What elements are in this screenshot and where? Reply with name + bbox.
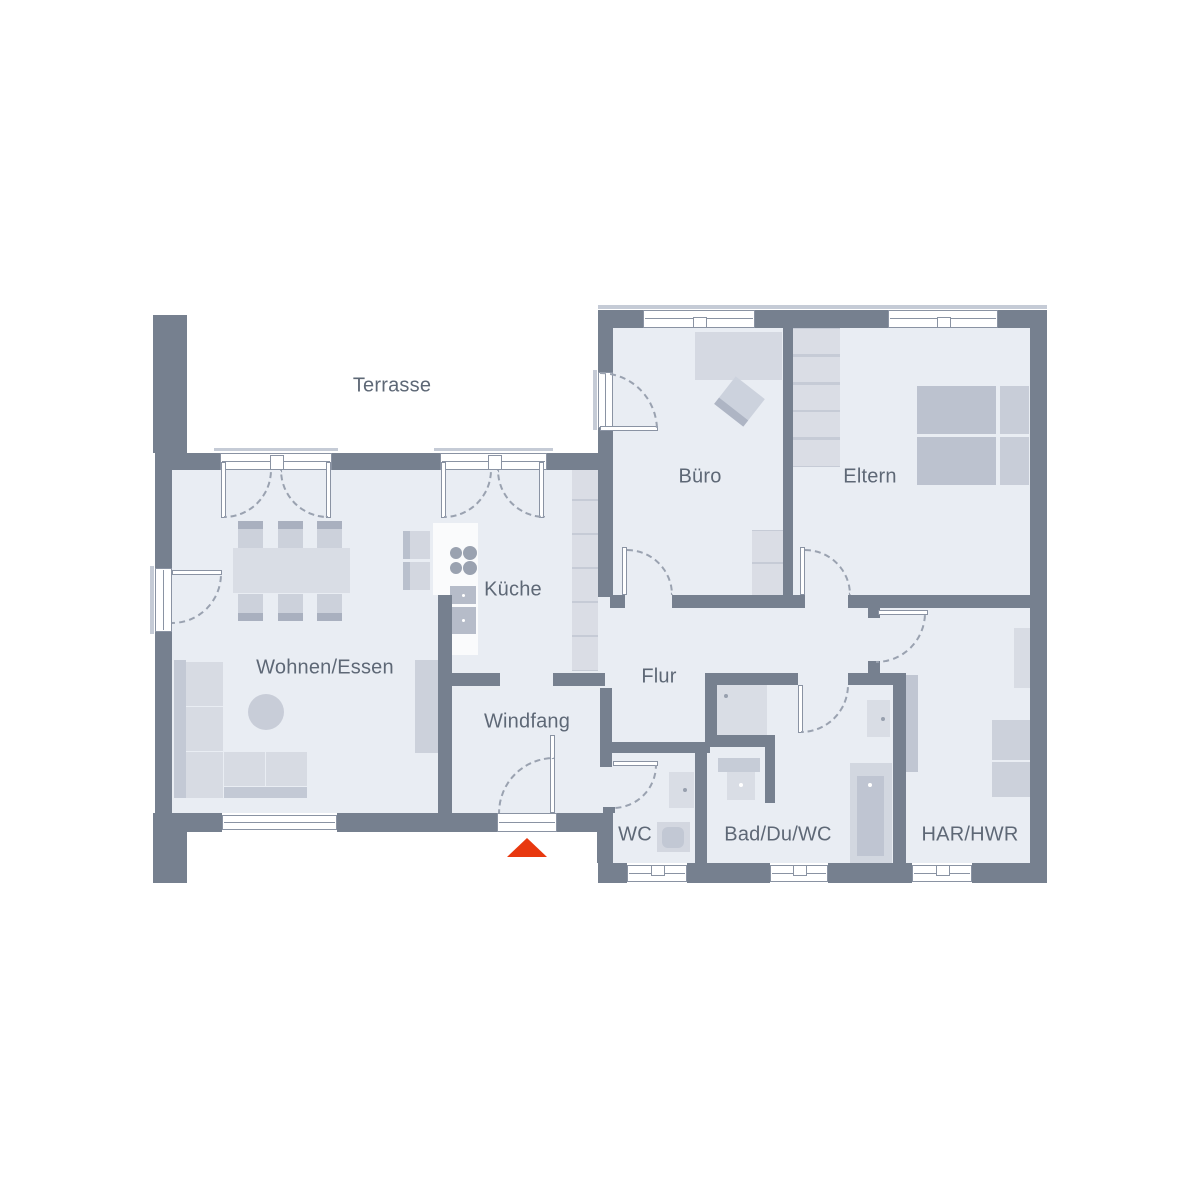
window-har: [912, 865, 972, 882]
window-eltern-top-mullion: [937, 317, 951, 328]
window-entrance-opening: [497, 813, 557, 832]
kitchen-cabinet-seg-6: [572, 637, 598, 670]
bad-washbasin-2: [867, 700, 890, 737]
wardrobe-seg-5: [793, 440, 840, 466]
sofa-seat-4: [266, 752, 307, 786]
wall-top-b: [332, 453, 440, 470]
wall-right-top-a: [598, 310, 643, 328]
sofa-back-bottom: [224, 787, 307, 798]
sofa-seat-1: [186, 662, 223, 706]
wall-wc-top: [603, 742, 710, 753]
window-left-door: [155, 568, 172, 632]
wall-bottom-a: [172, 813, 222, 832]
window-terrace-door-2-mullion: [488, 455, 502, 470]
har-shelf: [1014, 628, 1030, 688]
wall-step: [597, 813, 613, 863]
bar-chair-2: [403, 562, 430, 590]
wall-wc-east: [695, 742, 707, 863]
stove-burner-3: [450, 562, 462, 574]
chair-top-2-back: [278, 521, 303, 529]
wall-windfang-top-a: [450, 673, 500, 686]
sill-terrace-door-1: [214, 448, 338, 451]
kitchen-cabinet-seg-2: [572, 501, 598, 533]
window-har-mullion: [936, 865, 950, 876]
wc-washbasin-dot: [683, 788, 687, 792]
sofa-seat-2: [186, 707, 223, 751]
room-label-terrasse: Terrasse: [353, 375, 431, 398]
window-eltern-top: [888, 310, 998, 328]
shower: [717, 683, 767, 735]
wall-south-mid: [672, 595, 805, 608]
window-living-bottom: [222, 815, 337, 830]
wall-shower-partition: [765, 747, 775, 803]
bad-vanity-dot: [739, 783, 743, 787]
bed-mattress-1: [917, 386, 996, 434]
desk: [695, 332, 782, 380]
window-buero-top-mullion: [693, 317, 707, 328]
floor-plan-canvas: TerrasseBüroElternKücheWohnen/EssenFlurW…: [0, 0, 1200, 1200]
room-label-windfang: Windfang: [484, 711, 570, 734]
chair-bot-2-back: [278, 613, 303, 621]
wall-buero-eltern: [783, 328, 793, 597]
chair-bot-3-seat: [317, 594, 342, 613]
bathtub-dot: [868, 783, 872, 787]
window-terrace-door-1-mullion: [270, 455, 284, 470]
room-label-flur: Flur: [641, 666, 676, 689]
room-label-har-hwr: HAR/HWR: [922, 824, 1019, 847]
stove-burner-4: [463, 561, 477, 575]
shower-dot: [724, 694, 728, 698]
chair-top-3-back: [317, 521, 342, 529]
bad-washbasin-2-dot: [881, 717, 885, 721]
bed-head-1: [1000, 386, 1029, 434]
wall-right-bottom-d: [972, 863, 1047, 883]
room-label-wohnen-essen: Wohnen/Essen: [256, 657, 394, 680]
bar-chair-1: [403, 531, 430, 559]
window-wc: [627, 865, 687, 882]
wall-left-lower: [155, 632, 172, 813]
wc-washbasin: [669, 772, 694, 808]
window-bad: [770, 865, 828, 882]
room-label-wc: WC: [618, 824, 652, 847]
wall-south-stub: [610, 595, 625, 608]
chair-top-2-seat: [278, 529, 303, 548]
har-duct: [905, 675, 918, 772]
stove-burner-2: [463, 546, 477, 560]
bathtub-inner: [857, 776, 884, 856]
sofa-seat-3: [224, 752, 265, 786]
sill-top-strip: [598, 305, 1047, 309]
window-wc-mullion: [651, 865, 665, 876]
stove-burner-1: [450, 547, 462, 559]
wall-left-upper: [155, 453, 172, 568]
chair-bot-3-back: [317, 613, 342, 621]
sofa-back-left: [174, 660, 186, 798]
window-bad-mullion: [793, 865, 807, 876]
room-label-kueche: Küche: [484, 579, 542, 602]
har-appliance-2: [992, 762, 1030, 797]
wall-right: [1030, 310, 1047, 883]
chair-bot-1-seat: [238, 594, 263, 613]
bed-mattress-2: [917, 437, 996, 485]
kitchen-cabinet-seg-5: [572, 603, 598, 635]
coffee-table: [248, 694, 284, 730]
oven-1-dot: [462, 594, 465, 597]
room-label-bad-du-wc: Bad/Du/WC: [724, 824, 831, 847]
window-terrace-door-2: [440, 453, 547, 470]
har-appliance-1: [992, 720, 1030, 760]
sill-terrace-door-2: [434, 448, 553, 451]
kitchen-cabinet-seg-4: [572, 569, 598, 601]
wall-south-east: [848, 595, 1030, 608]
kitchen-cabinet-seg-1: [572, 467, 598, 499]
wardrobe-seg-1: [793, 329, 840, 354]
wall-shower: [705, 735, 775, 747]
wall-bad-har: [893, 673, 906, 863]
chair-bot-2-seat: [278, 594, 303, 613]
wall-bad-top-w: [705, 673, 798, 685]
wall-right-bottom-c: [828, 863, 912, 883]
wall-right-bottom-b: [687, 863, 770, 883]
chair-top-1-seat: [238, 529, 263, 548]
bad-vanity: [718, 758, 760, 772]
page: { "palette": { "wall": "#76808F", "floor…: [0, 0, 1200, 1200]
bed-head-2: [1000, 437, 1029, 485]
buero-cabinet-seg-1: [752, 531, 783, 562]
north-arrow-icon: [507, 838, 547, 857]
kitchen-cabinet-seg-3: [572, 535, 598, 567]
room-label-eltern: Eltern: [843, 466, 896, 489]
wall-top-a: [172, 453, 220, 470]
wall-wohnen-windfang: [438, 595, 452, 813]
window-left-door-glass-line: [163, 570, 164, 630]
wc-toilet-inner: [662, 827, 684, 848]
sill-buero-terrace: [593, 370, 597, 430]
window-buero-top: [643, 310, 755, 328]
chair-bot-1-back: [238, 613, 263, 621]
buero-cabinet-seg-2: [752, 564, 783, 596]
sofa-corner: [186, 752, 223, 798]
wall-windfang-top-b: [553, 673, 605, 686]
dining-table: [233, 548, 350, 593]
window-terrace-door-1: [220, 453, 332, 470]
wardrobe-seg-3: [793, 385, 840, 410]
oven-2-dot: [462, 619, 465, 622]
wardrobe-seg-4: [793, 412, 840, 437]
window-entrance-opening-glass-line: [499, 822, 555, 823]
wall-right-top-b: [755, 310, 888, 328]
wall-bottom-b: [337, 813, 497, 832]
wall-rightsec-left-b: [598, 428, 613, 597]
sill-left-door: [150, 566, 154, 634]
room-label-buero: Büro: [678, 466, 721, 489]
chair-top-3-seat: [317, 529, 342, 548]
window-living-bottom-glass-line: [224, 822, 335, 823]
wardrobe-seg-2: [793, 357, 840, 382]
wall-terrasse-pillar: [153, 315, 187, 453]
tv-board: [415, 660, 438, 753]
wall-right-bottom-a: [598, 863, 627, 883]
kitchen-counter: [433, 523, 447, 595]
wall-windfang-east: [600, 688, 612, 767]
chair-top-1-back: [238, 521, 263, 529]
